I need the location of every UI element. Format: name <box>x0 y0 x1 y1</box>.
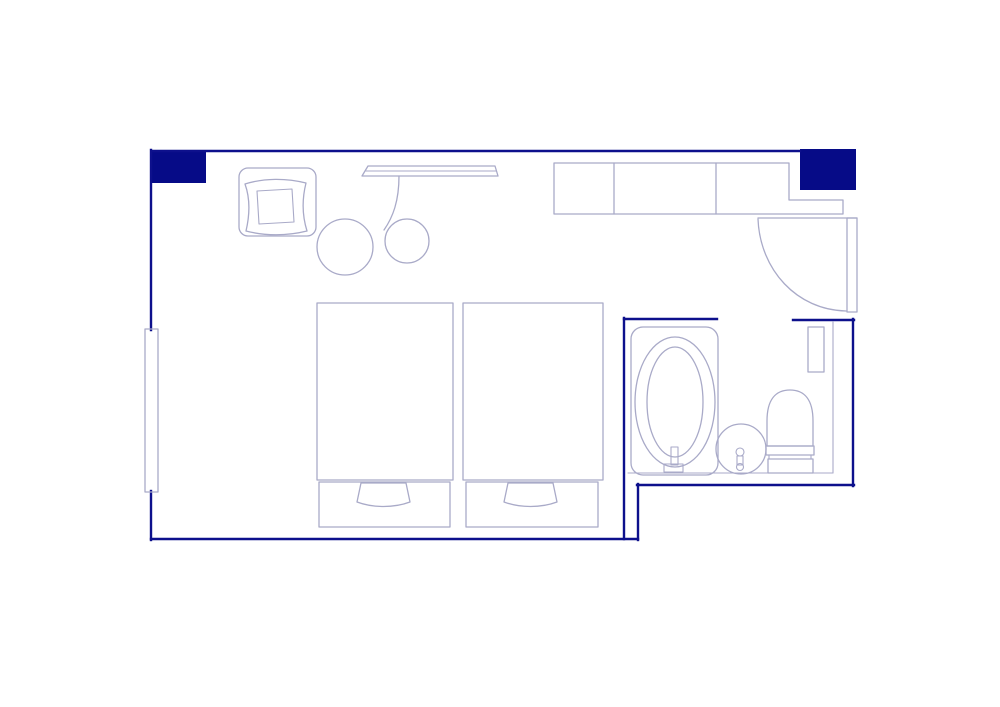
armchair <box>239 168 316 236</box>
twin-bed-left-pillow <box>357 483 410 507</box>
bath-faucet <box>671 447 678 465</box>
toilet-seat <box>766 446 814 455</box>
toilet-bowl <box>767 390 813 446</box>
round-stool <box>385 219 429 263</box>
armchair-cushion <box>245 179 307 234</box>
twin-bed-right-mattress <box>463 303 603 480</box>
wardrobe-counter <box>554 163 843 214</box>
round-table <box>317 219 373 275</box>
floor-plan-drawing <box>0 0 1000 707</box>
twin-bed-left-footboard <box>319 482 450 527</box>
furniture <box>145 163 857 527</box>
twin-bed-left-mattress <box>317 303 453 480</box>
twin-bed-right-footboard <box>466 482 598 527</box>
toilet-tank <box>768 459 813 473</box>
washbasin <box>716 424 766 474</box>
bathroom-shelf <box>808 327 824 372</box>
basin-faucet-head <box>736 448 744 456</box>
floor-plan-image <box>0 0 1000 707</box>
entry-door-panel <box>847 218 857 312</box>
wall-pillar-top-left <box>150 150 206 183</box>
bathtub <box>631 327 718 475</box>
wall-pillars <box>150 149 856 190</box>
armchair-cushion-inner <box>257 189 294 224</box>
entry-door-swing-arc <box>758 219 846 311</box>
wall-pillar-top-right <box>800 149 856 190</box>
window <box>145 329 158 492</box>
twin-bed-right-pillow <box>504 483 557 507</box>
bathtub-basin <box>647 347 703 457</box>
